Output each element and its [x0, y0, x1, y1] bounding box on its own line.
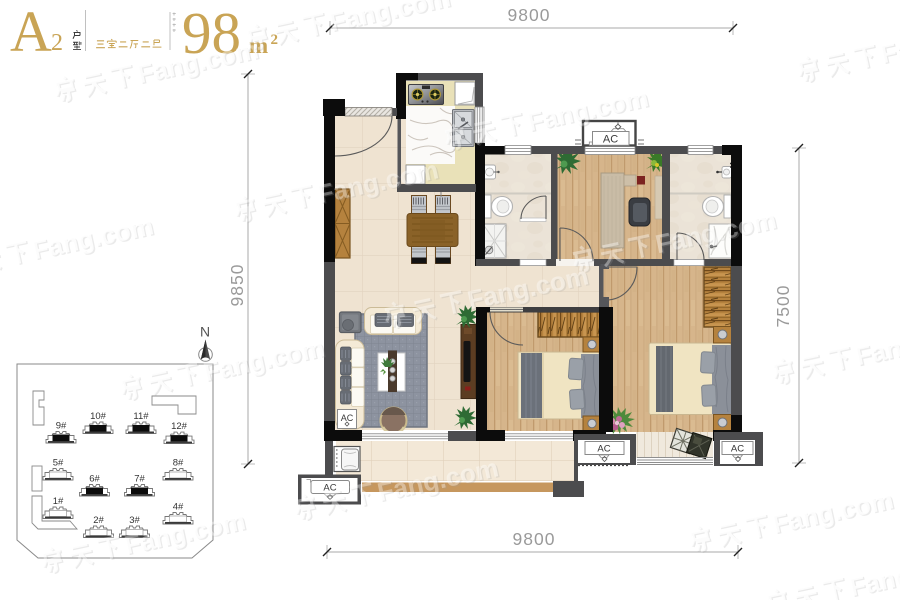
svg-text:7500: 7500 [773, 285, 793, 328]
svg-text:AC: AC [341, 413, 354, 423]
svg-text:4#: 4# [173, 502, 184, 513]
svg-text:5#: 5# [53, 458, 64, 469]
svg-text:11#: 11# [133, 411, 149, 422]
svg-text:2#: 2# [93, 515, 104, 526]
svg-text:N: N [200, 324, 210, 340]
svg-text:AC: AC [603, 134, 618, 146]
svg-text:9800: 9800 [508, 5, 551, 25]
svg-text:9#: 9# [56, 421, 67, 432]
svg-text:6#: 6# [89, 474, 100, 485]
svg-text:1#: 1# [53, 496, 64, 507]
svg-text:3#: 3# [129, 515, 140, 526]
svg-text:2: 2 [51, 30, 63, 56]
svg-text:AC: AC [597, 444, 610, 455]
svg-text:A: A [10, 0, 52, 64]
svg-text:AC: AC [731, 444, 744, 455]
svg-text:7#: 7# [134, 474, 145, 485]
svg-text:9800: 9800 [513, 529, 556, 549]
svg-text:9850: 9850 [227, 264, 247, 307]
svg-text:2: 2 [271, 32, 279, 48]
svg-text:12#: 12# [171, 421, 188, 432]
svg-text:8#: 8# [173, 458, 184, 469]
svg-text:10#: 10# [90, 411, 107, 422]
